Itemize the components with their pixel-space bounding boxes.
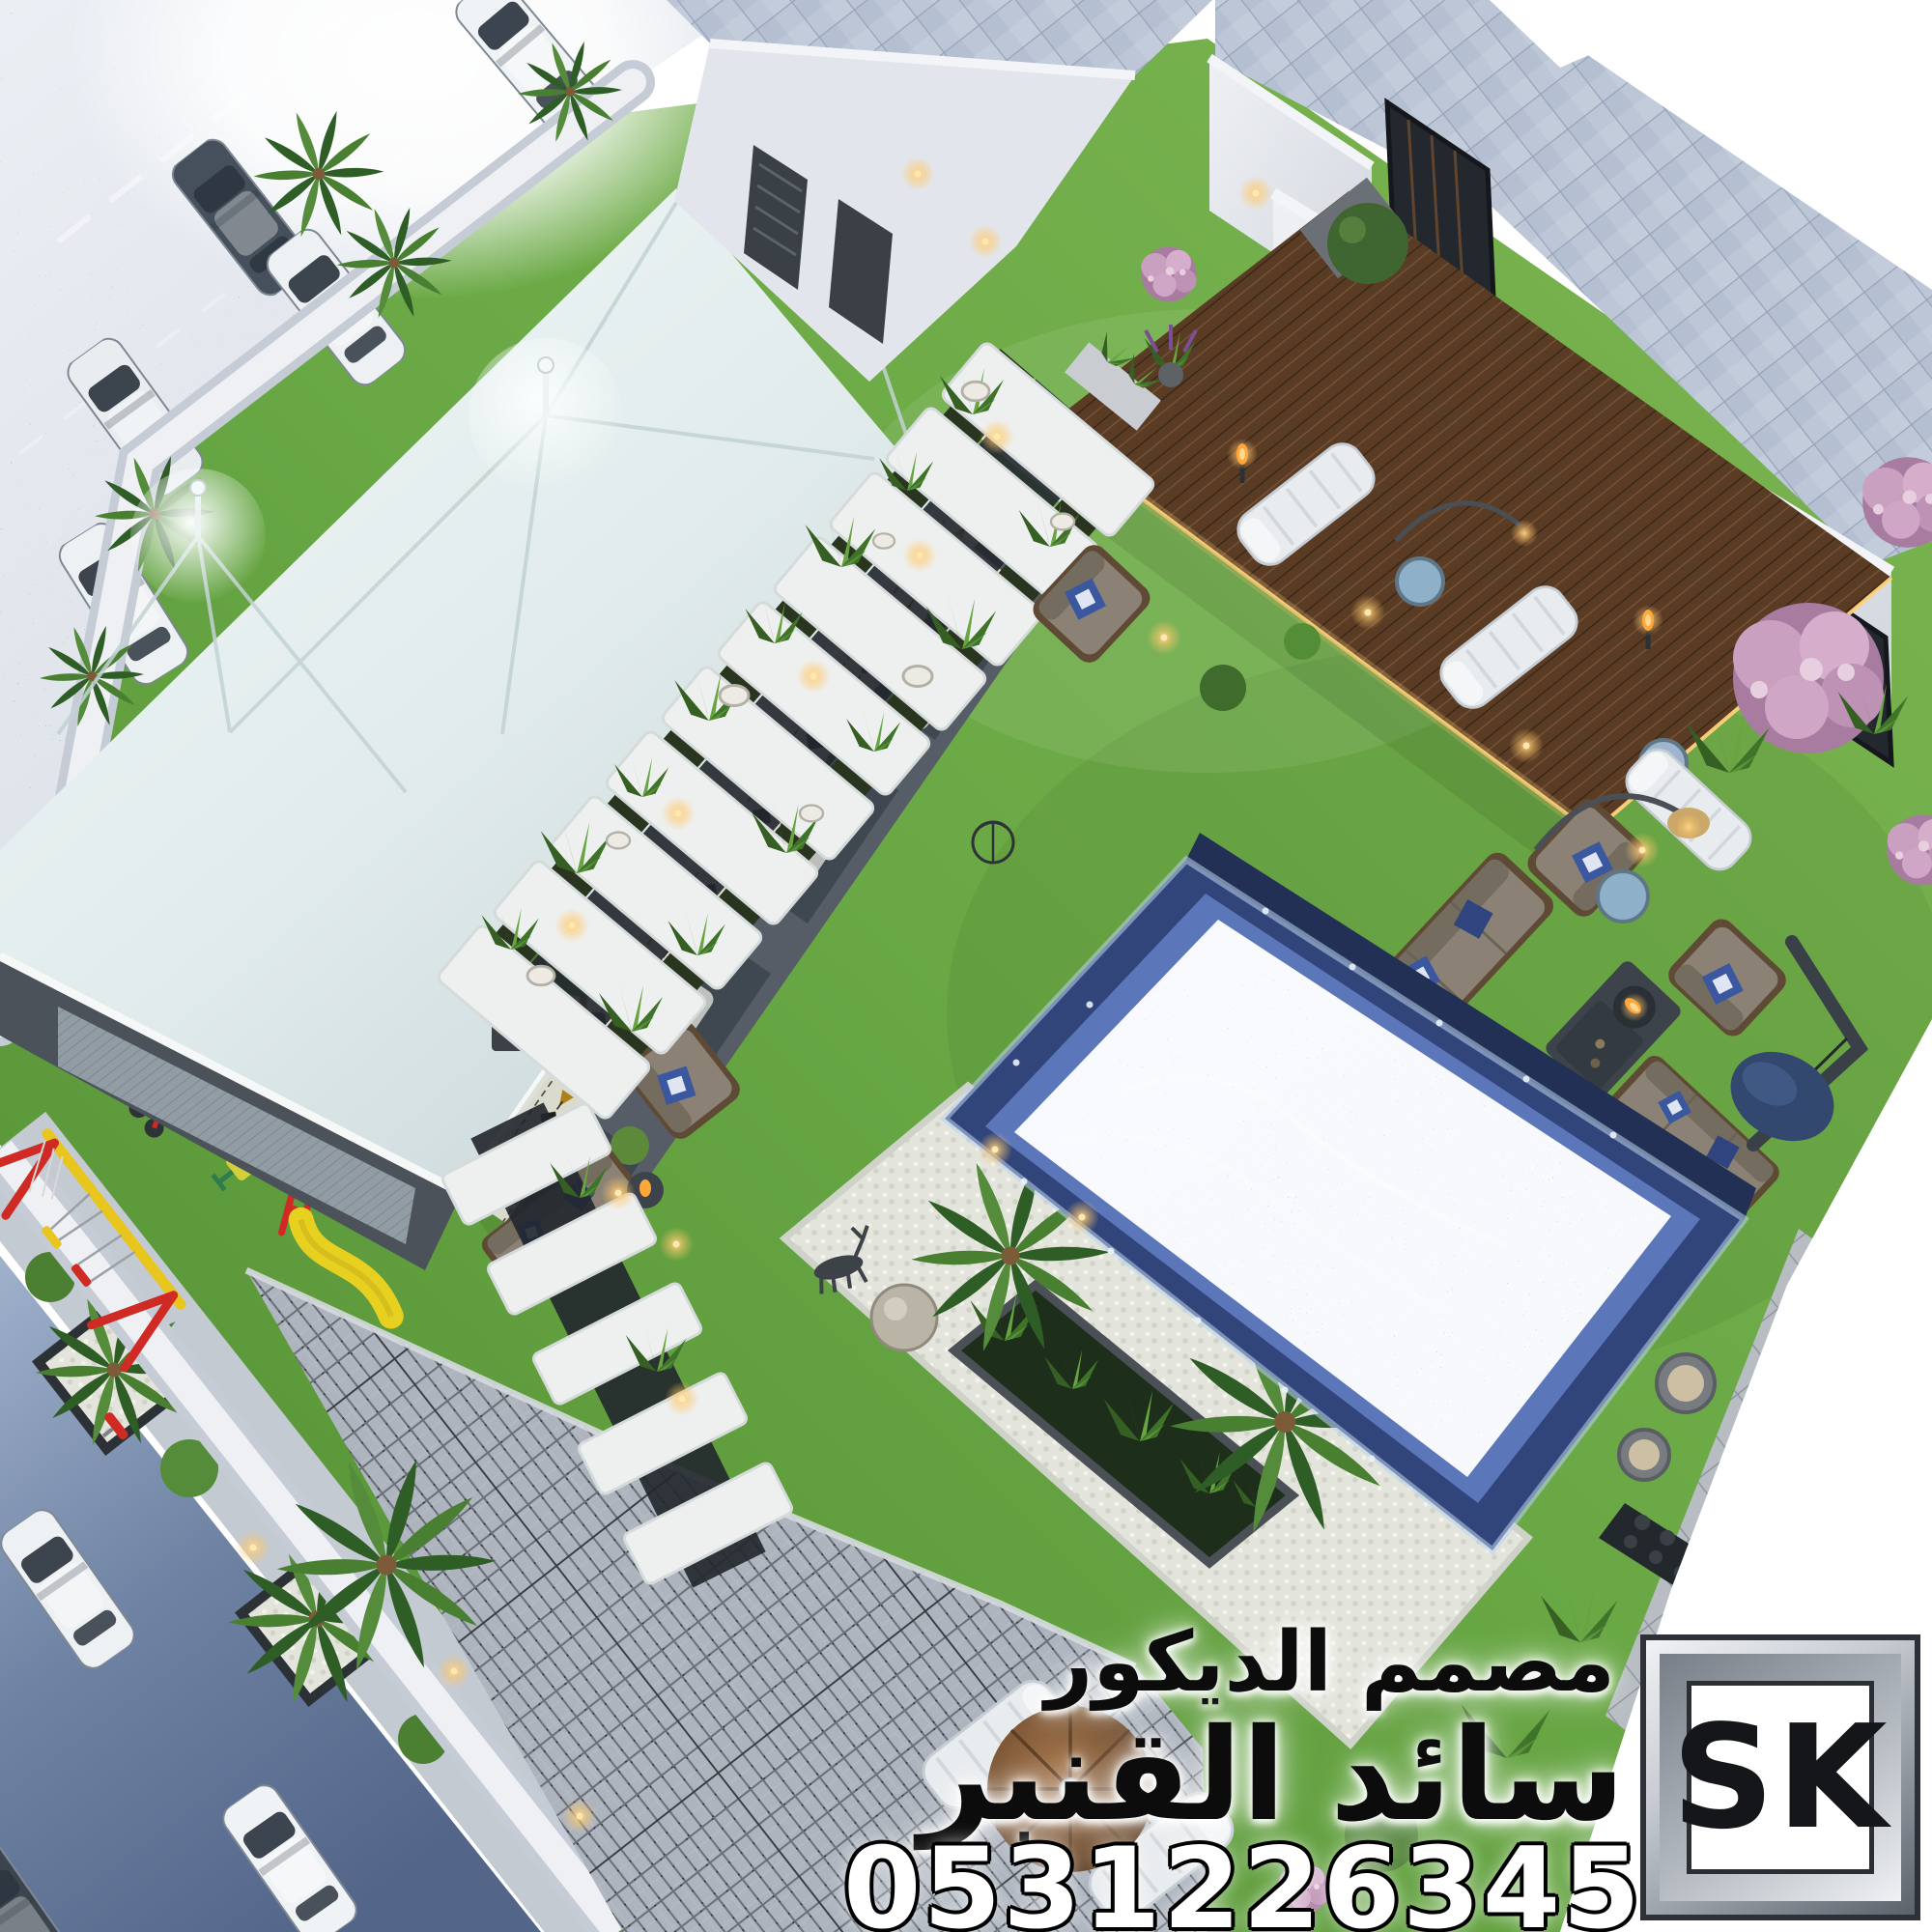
path-lamp-glow: [902, 538, 937, 573]
watermark-designer-name: سائد القنبر: [919, 1712, 1625, 1839]
stone-sphere: [871, 1285, 937, 1350]
path-lamp-glow: [980, 419, 1014, 454]
deck-tree: [1339, 216, 1366, 243]
flame: [639, 1179, 651, 1197]
path-lamp-glow: [661, 796, 696, 831]
pink-flower-bush: [1733, 603, 1884, 753]
watermark-designer-title: مصمم الديكور: [1045, 1621, 1615, 1704]
stone-sphere-highlight: [884, 1297, 907, 1321]
rendered-villa-plan: مصمم الديكور سائد القنبر 0531226345 SK: [0, 0, 1932, 1932]
path-lamp-glow: [601, 1176, 636, 1210]
sk-logo: SK: [1640, 1634, 1920, 1920]
wall-sconce-glow: [900, 156, 935, 191]
deck-side-table: [1397, 558, 1443, 605]
pink-flower-pot: [1141, 246, 1196, 301]
pebble-bowl: [1619, 1430, 1669, 1480]
pool-lantern-glow: [1065, 1200, 1099, 1235]
deck-tree: [1327, 203, 1408, 284]
wall-light-glow: [236, 1530, 270, 1565]
sk-logo-inner-panel: SK: [1687, 1681, 1874, 1874]
pool-lantern-glow: [978, 1132, 1012, 1167]
wall-sconce-glow: [968, 224, 1003, 259]
lantern-glow: [659, 1227, 694, 1262]
deck-lantern-glow: [1509, 728, 1544, 763]
lawn-shrub: [1200, 665, 1246, 711]
glass-side-table: [1598, 871, 1648, 922]
wicker-lamp-glow: [1147, 620, 1181, 655]
lantern-glow: [1625, 833, 1660, 867]
watermark-phone-number: 0531226345: [843, 1833, 1642, 1932]
path-lamp-glow: [554, 908, 589, 943]
sk-logo-text: SK: [1671, 1706, 1889, 1849]
path-lamp-glow: [796, 659, 831, 694]
deck-lantern-glow: [1350, 595, 1385, 630]
path-lamp-glow: [665, 1381, 699, 1416]
lawn-shrub: [1284, 623, 1321, 660]
wall-sconce-glow: [1238, 176, 1273, 211]
wall-light-glow: [437, 1654, 471, 1689]
wall-light-glow: [562, 1799, 597, 1833]
pebble-bowl: [1657, 1354, 1715, 1412]
